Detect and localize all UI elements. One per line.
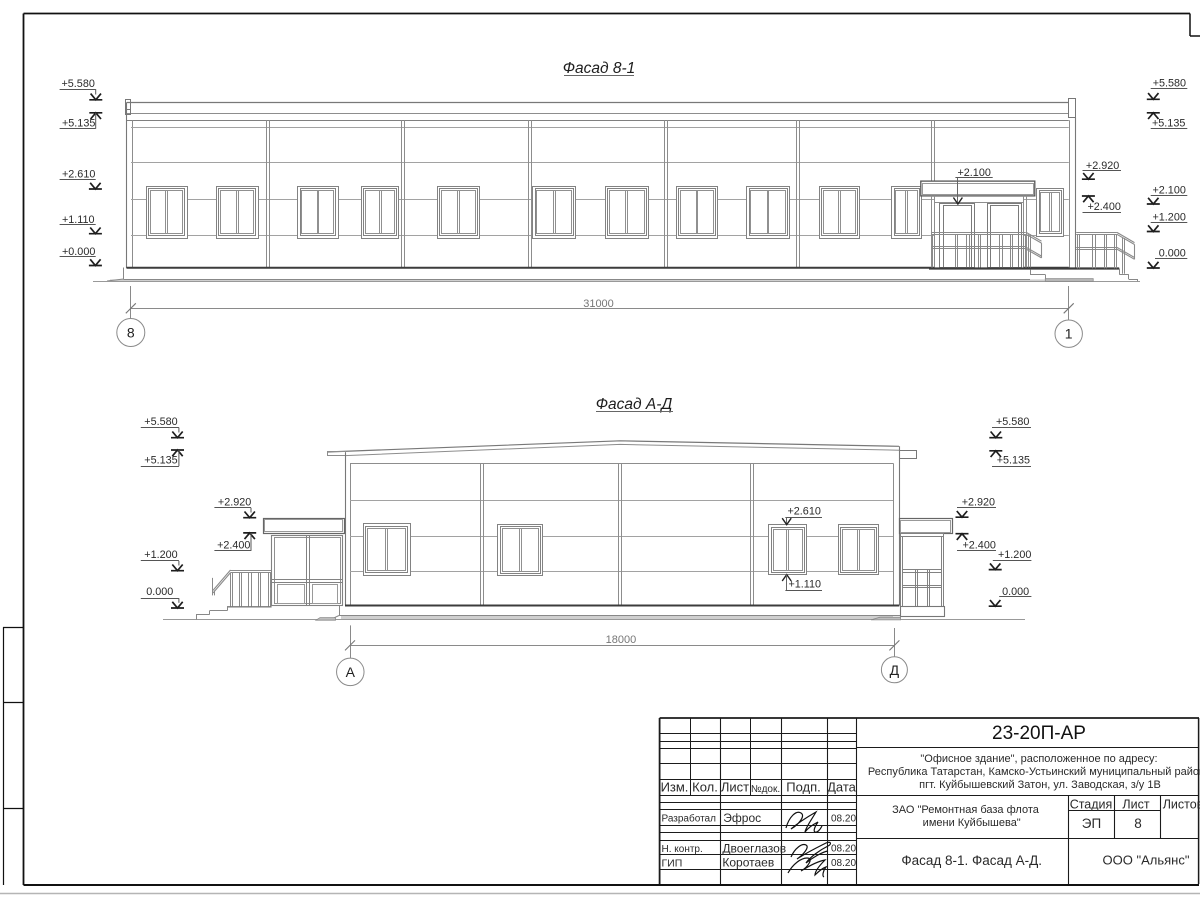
svg-text:0.000: 0.000 — [1159, 248, 1186, 260]
svg-text:08.20: 08.20 — [831, 844, 856, 855]
svg-text:№док.: №док. — [751, 784, 780, 795]
svg-text:1: 1 — [1065, 326, 1073, 342]
svg-text:+1.200: +1.200 — [144, 549, 177, 561]
svg-text:ЭП: ЭП — [1082, 816, 1101, 831]
svg-text:23-20П-АР: 23-20П-АР — [992, 723, 1086, 744]
svg-text:ЗАО "Ремонтная база флота: ЗАО "Ремонтная база флота — [892, 804, 1040, 816]
svg-text:Стадия: Стадия — [1070, 798, 1113, 812]
svg-text:+5.135: +5.135 — [997, 454, 1030, 466]
svg-text:+2.400: +2.400 — [217, 540, 250, 552]
svg-text:+2.400: +2.400 — [1088, 201, 1121, 213]
svg-text:+1.200: +1.200 — [1153, 212, 1186, 224]
svg-text:Коротаев: Коротаев — [722, 855, 774, 869]
svg-text:Республика Татарстан, Камско-У: Республика Татарстан, Камско-Устьинский … — [868, 766, 1200, 778]
svg-text:пгт. Куйбышевский Затон, ул. З: пгт. Куйбышевский Затон, ул. Заводская, … — [919, 779, 1161, 791]
svg-text:+2.100: +2.100 — [1153, 184, 1186, 196]
svg-text:Лист: Лист — [1122, 798, 1149, 812]
svg-text:Фасад 8-1: Фасад 8-1 — [563, 60, 636, 77]
svg-text:0.000: 0.000 — [146, 586, 173, 598]
svg-text:8: 8 — [1134, 816, 1142, 831]
svg-text:А: А — [346, 664, 356, 680]
svg-text:Дата: Дата — [827, 780, 857, 795]
svg-text:31000: 31000 — [583, 298, 614, 310]
svg-text:+5.580: +5.580 — [62, 78, 95, 90]
svg-text:Эфрос: Эфрос — [723, 811, 761, 825]
svg-text:+2.920: +2.920 — [962, 496, 995, 508]
svg-text:+5.580: +5.580 — [996, 416, 1029, 428]
svg-text:+5.580: +5.580 — [144, 416, 177, 428]
svg-text:+5.580: +5.580 — [1153, 78, 1186, 90]
svg-text:+1.200: +1.200 — [998, 549, 1031, 561]
svg-text:Двоеглазов: Двоеглазов — [722, 841, 786, 855]
svg-text:Н. контр.: Н. контр. — [662, 844, 703, 855]
svg-text:Лист: Лист — [721, 780, 749, 795]
svg-text:Кол.: Кол. — [692, 780, 718, 795]
svg-text:+2.610: +2.610 — [62, 169, 95, 181]
svg-text:08.20: 08.20 — [831, 814, 856, 825]
svg-text:имени Куйбышева": имени Куйбышева" — [923, 817, 1021, 829]
svg-text:ООО "Альянс": ООО "Альянс" — [1103, 853, 1190, 868]
svg-text:Листов: Листов — [1163, 798, 1200, 812]
svg-text:Фасад 8-1. Фасад А-Д.: Фасад 8-1. Фасад А-Д. — [901, 853, 1042, 868]
svg-text:+5.135: +5.135 — [1152, 118, 1185, 130]
svg-text:+5.135: +5.135 — [62, 118, 95, 130]
svg-text:Подп.: Подп. — [786, 780, 821, 795]
svg-text:Изм.: Изм. — [661, 780, 689, 795]
svg-text:"Офисное здание", расположенно: "Офисное здание", расположенное по адрес… — [920, 753, 1157, 765]
svg-text:18000: 18000 — [606, 634, 637, 646]
svg-text:Д: Д — [890, 662, 900, 678]
svg-text:8: 8 — [127, 325, 135, 341]
svg-text:+2.400: +2.400 — [963, 540, 996, 552]
svg-text:+1.110: +1.110 — [789, 579, 822, 591]
svg-text:08.20: 08.20 — [831, 858, 856, 869]
svg-text:+2.920: +2.920 — [218, 496, 251, 508]
svg-text:Разработал: Разработал — [662, 813, 717, 825]
svg-text:+2.610: +2.610 — [788, 506, 821, 518]
svg-text:ГИП: ГИП — [662, 858, 683, 870]
svg-text:Фасад А-Д: Фасад А-Д — [596, 396, 673, 413]
